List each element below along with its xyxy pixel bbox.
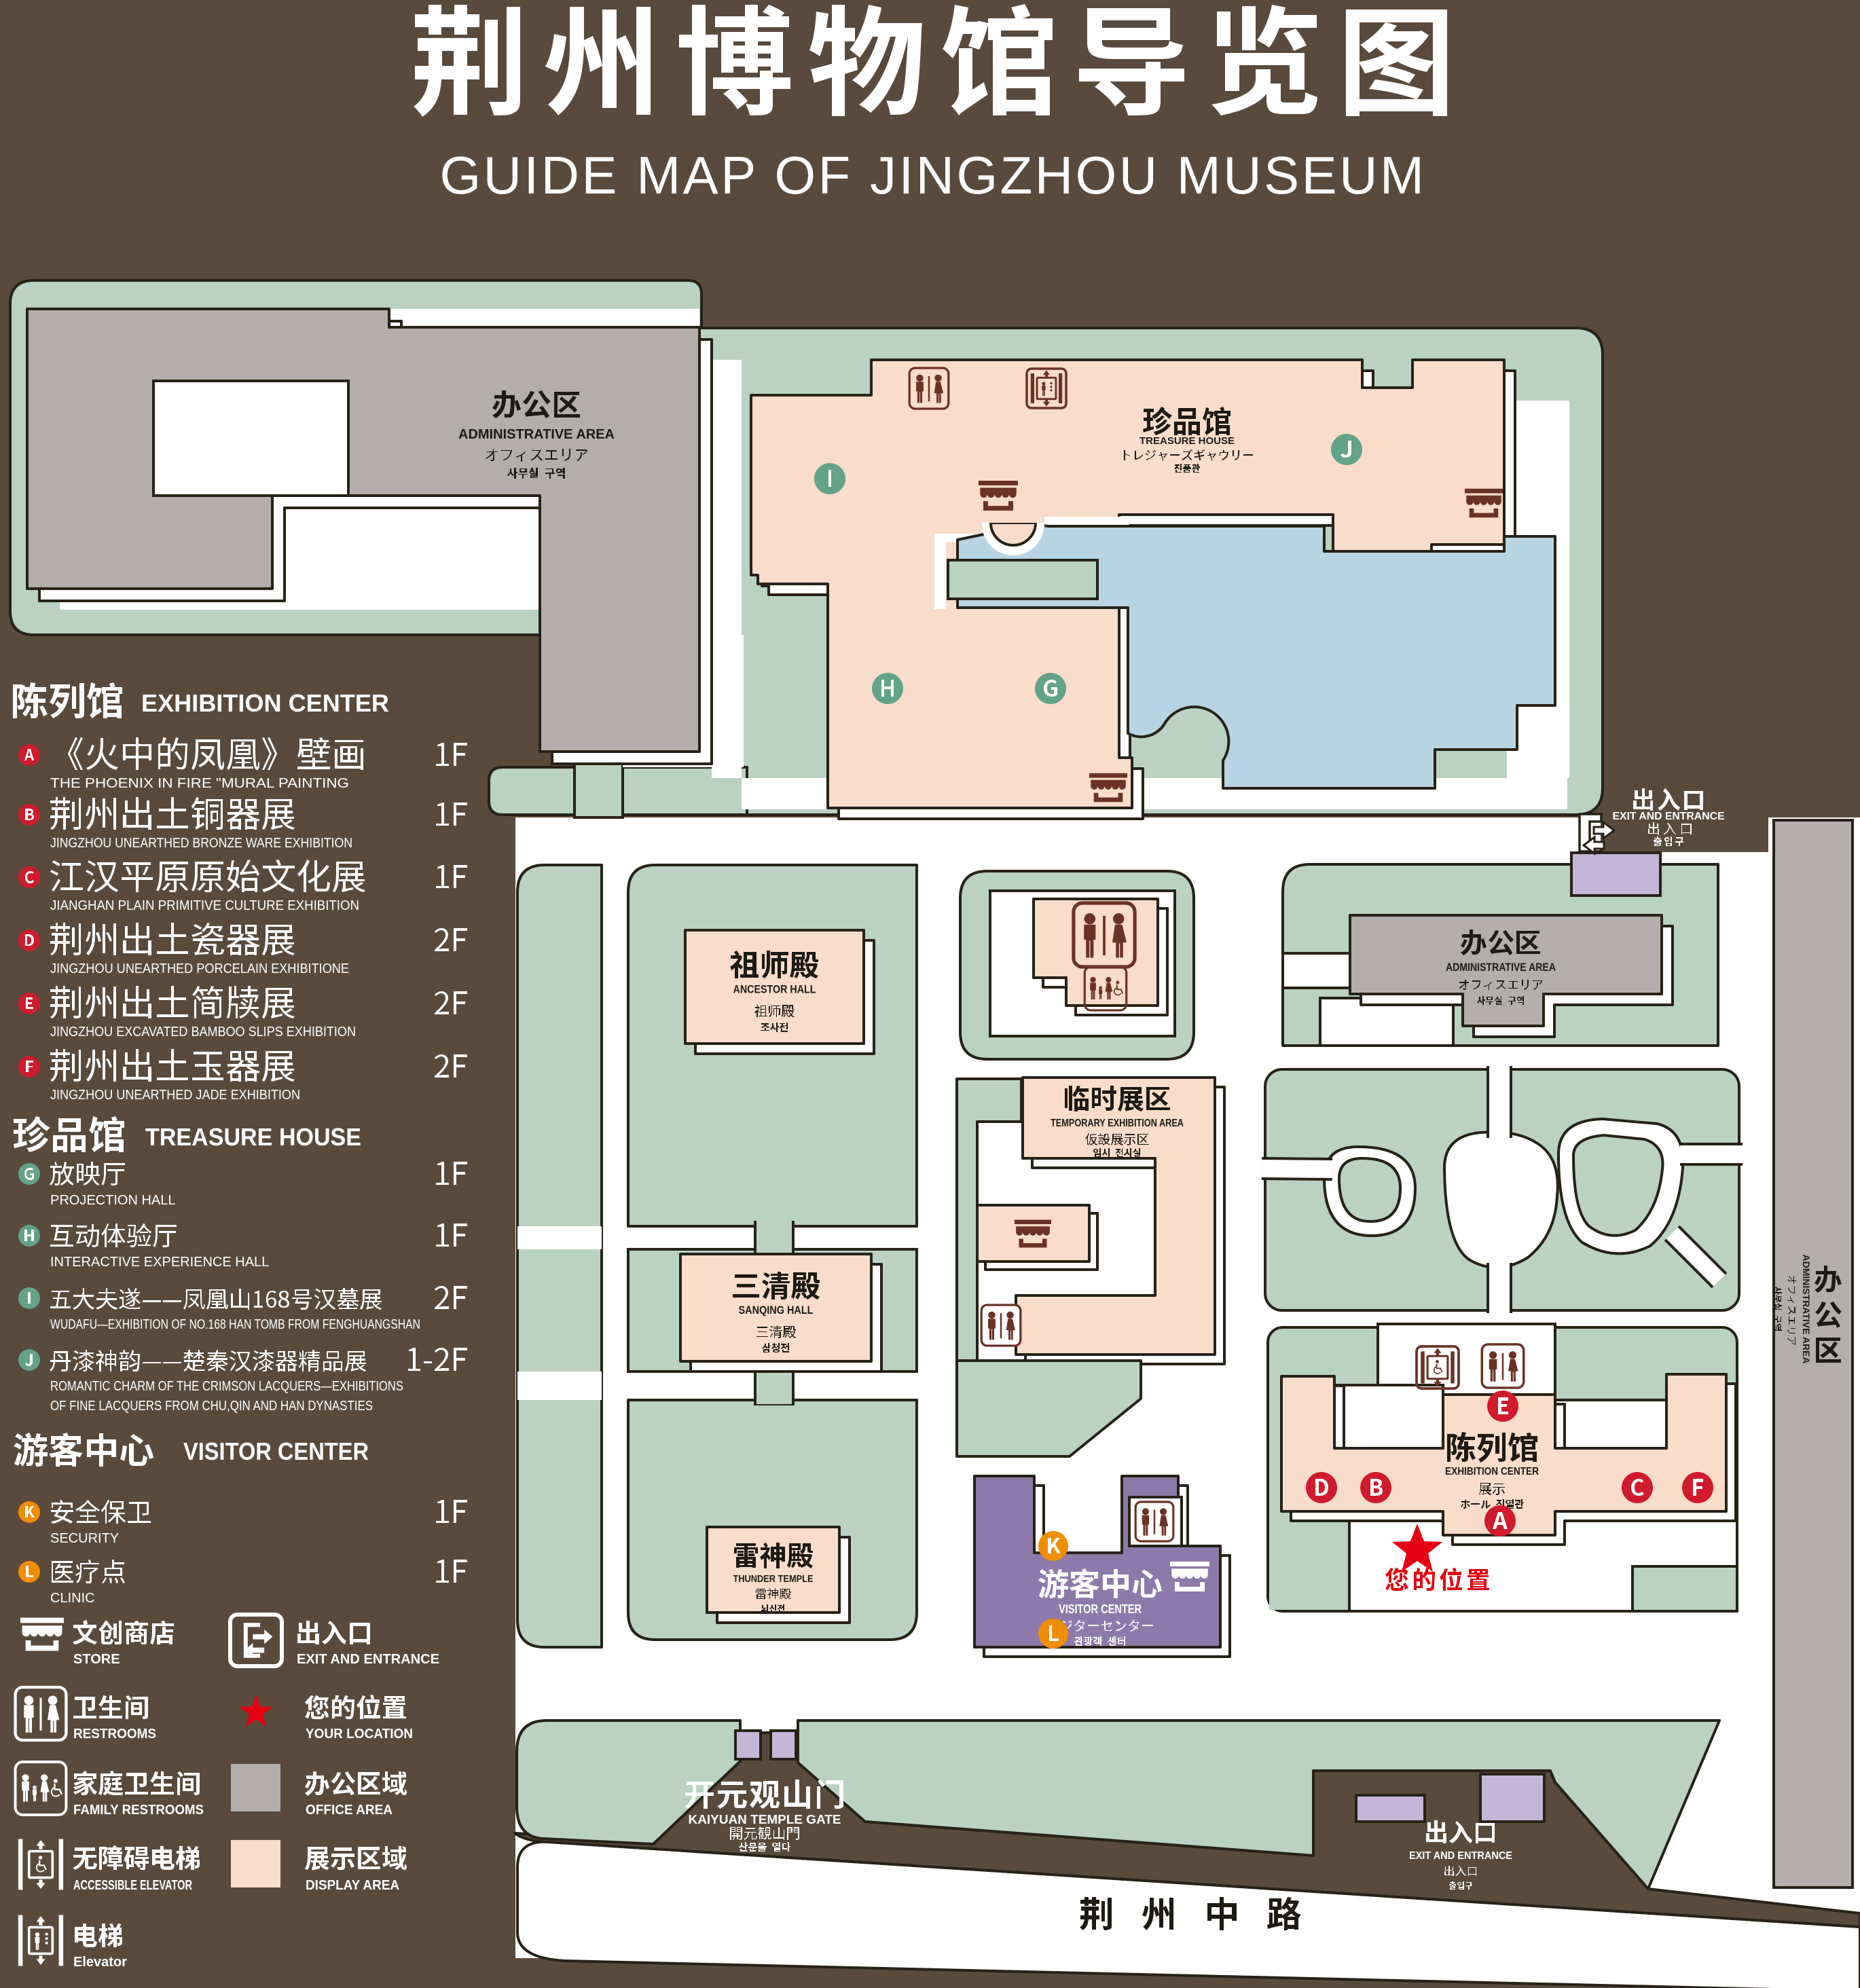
- svg-text:OF FINE LACQUERS FROM CHU,QIN: OF FINE LACQUERS FROM CHU,QIN AND HAN DY…: [50, 1399, 373, 1414]
- svg-text:YOUR LOCATION: YOUR LOCATION: [306, 1727, 413, 1742]
- svg-text:PROJECTION HALL: PROJECTION HALL: [50, 1193, 175, 1208]
- svg-text:JINGZHOU UNEARTHED JADE EXHIBI: JINGZHOU UNEARTHED JADE EXHIBITION: [50, 1088, 300, 1103]
- svg-text:FAMILY RESTROOMS: FAMILY RESTROOMS: [73, 1803, 204, 1818]
- svg-text:OFFICE AREA: OFFICE AREA: [306, 1803, 393, 1818]
- svg-text:GUIDE MAP OF JINGZHOU MUSEUM: GUIDE MAP OF JINGZHOU MUSEUM: [440, 145, 1427, 205]
- svg-text:TEMPORARY EXHIBITION AREA: TEMPORARY EXHIBITION AREA: [1051, 1118, 1184, 1129]
- svg-text:THE PHOENIX IN FIRE "MURAL PAI: THE PHOENIX IN FIRE "MURAL PAINTING: [50, 776, 349, 791]
- svg-text:JINGZHOU UNEARTHED BRONZE WARE: JINGZHOU UNEARTHED BRONZE WARE EXHIBITIO…: [50, 836, 352, 851]
- svg-text:DISPLAY AREA: DISPLAY AREA: [306, 1878, 399, 1893]
- svg-text:EXIT AND ENTRANCE: EXIT AND ENTRANCE: [1409, 1850, 1512, 1862]
- svg-text:INTERACTIVE EXPERIENCE HALL: INTERACTIVE EXPERIENCE HALL: [50, 1255, 269, 1270]
- svg-text:RESTROOMS: RESTROOMS: [73, 1727, 156, 1742]
- svg-text:KAIYUAN TEMPLE GATE: KAIYUAN TEMPLE GATE: [689, 1813, 841, 1826]
- svg-text:EXHIBITION CENTER: EXHIBITION CENTER: [141, 689, 389, 717]
- svg-text:Elevator: Elevator: [73, 1955, 127, 1970]
- svg-text:TREASURE HOUSE: TREASURE HOUSE: [145, 1123, 361, 1151]
- svg-text:ACCESSIBLE ELEVATOR: ACCESSIBLE ELEVATOR: [73, 1878, 192, 1893]
- svg-text:JIANGHAN PLAIN PRIMITIVE CULTU: JIANGHAN PLAIN PRIMITIVE CULTURE EXHIBIT…: [50, 898, 359, 913]
- svg-text:ADMINISTRATIVE AREA: ADMINISTRATIVE AREA: [458, 427, 615, 442]
- svg-text:ROMANTIC CHARM OF THE CRIMSON: ROMANTIC CHARM OF THE CRIMSON LACQUERS—E…: [50, 1379, 403, 1394]
- svg-text:WUDAFU—EXHIBITION OF NO.168 HA: WUDAFU—EXHIBITION OF NO.168 HAN TOMB FRO…: [50, 1317, 420, 1332]
- svg-text:EXHIBITION CENTER: EXHIBITION CENTER: [1445, 1466, 1539, 1477]
- svg-text:STORE: STORE: [73, 1652, 120, 1667]
- svg-text:SECURITY: SECURITY: [50, 1531, 119, 1546]
- svg-text:TREASURE HOUSE: TREASURE HOUSE: [1139, 435, 1235, 447]
- svg-text:JINGZHOU UNEARTHED PORCELAIN E: JINGZHOU UNEARTHED PORCELAIN EXHIBITIONE: [50, 961, 349, 976]
- svg-text:EXIT AND ENTRANCE: EXIT AND ENTRANCE: [1613, 811, 1725, 822]
- svg-text:ADMINISTRATIVE AREA: ADMINISTRATIVE AREA: [1446, 961, 1556, 974]
- svg-text:ADMINISTRATIVE AREA: ADMINISTRATIVE AREA: [1801, 1255, 1812, 1364]
- svg-text:THUNDER TEMPLE: THUNDER TEMPLE: [733, 1573, 814, 1585]
- svg-text:EXIT AND ENTRANCE: EXIT AND ENTRANCE: [297, 1652, 439, 1667]
- svg-text:ANCESTOR HALL: ANCESTOR HALL: [733, 983, 816, 996]
- svg-text:CLINIC: CLINIC: [50, 1591, 95, 1606]
- svg-text:JINGZHOU EXCAVATED BAMBOO SLIP: JINGZHOU EXCAVATED BAMBOO SLIPS EXHIBITI…: [50, 1025, 356, 1039]
- svg-text:VISITOR CENTER: VISITOR CENTER: [1059, 1602, 1142, 1616]
- svg-text:VISITOR CENTER: VISITOR CENTER: [183, 1437, 369, 1465]
- svg-text:SANQING HALL: SANQING HALL: [739, 1304, 814, 1317]
